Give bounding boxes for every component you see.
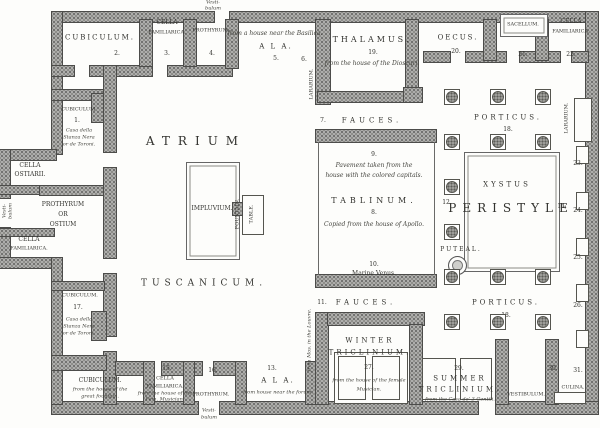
cella-familiarica-bottom-source-line2: Fem. Musician.: [146, 398, 185, 403]
column-icon: [444, 269, 460, 285]
sacellum: SACELLUM.: [507, 23, 539, 28]
cubiculum-17-source-line2: Stanza Nera: [63, 325, 95, 330]
table: TABLE.: [250, 205, 255, 224]
wall-atrium-west-2: [104, 168, 116, 258]
column-icon: [490, 314, 506, 330]
tablinum-side-east: [434, 142, 435, 275]
room-number-12: 12.: [442, 200, 452, 206]
tablinum-source-line2: house with the colored capitals.: [325, 173, 422, 179]
room-number-3: 3.: [164, 51, 170, 57]
room-number-22: 22.: [566, 52, 576, 58]
room-number-6: 6.: [301, 57, 307, 63]
room-number-21: 21.: [518, 52, 528, 58]
wall-cubiculum17-top: [52, 282, 104, 290]
room-number-8: 8.: [371, 210, 377, 216]
room-prothyrum-or-ostium-line1: PROTHYRUM: [42, 202, 84, 208]
room-number-24: 24.: [573, 208, 583, 214]
tablinum-source-line3: Copied from the house of Apollo.: [324, 222, 424, 228]
column-icon: [444, 89, 460, 105]
room-culina: CULINA.: [562, 386, 585, 391]
tablinum-side-west: [318, 142, 319, 275]
room-number-31: 31.: [573, 368, 583, 374]
room-winter-triclinium-line1: WINTER: [345, 338, 394, 345]
cubiculum-1-source-line2: Stanza Nera: [63, 136, 95, 141]
thalamus-source: from the house of the Dioscuri.: [325, 61, 420, 67]
room-atrium: ATRIUM: [146, 135, 246, 147]
cubiculum-bottom-left-source-line2: great fountain.: [81, 395, 119, 400]
room-cella-familiarica-top-line1: CELLA: [156, 20, 177, 26]
vestibulum-left-line2: bulum: [9, 203, 14, 219]
ala-bottom-source: from house near the forum.: [243, 391, 313, 396]
room-prothyrum-bottom: PROTHYRUM.: [193, 393, 230, 398]
wall-div-cubiculum2-cella3: [140, 20, 152, 66]
wall-annex-bottom: [0, 258, 58, 268]
room-number-29: 29.: [454, 366, 464, 372]
room-number-30: 30.: [548, 366, 558, 372]
room-thalamus: THALAMUS.: [333, 36, 412, 44]
winter-triclinium-source-line2: Musician.: [357, 388, 382, 393]
winter-triclinium-source-line1: from the house of the female: [332, 379, 405, 384]
room-cella-familiarica-right-line1: CELLA: [560, 19, 581, 25]
room-cubiculum-left-upper: CUBICULUM.: [61, 108, 97, 113]
wall-div-bottom-3: [236, 362, 246, 404]
room-cubiculum-top: CUBICULUM.: [65, 35, 135, 42]
room-tablinum: TABLINUM.: [331, 197, 417, 205]
wall-thalamus-east: [406, 20, 418, 98]
column-icon: [444, 134, 460, 150]
room-number-15: 15.: [162, 366, 172, 372]
column-icon: [444, 179, 460, 195]
wall-left-upper: [52, 12, 62, 154]
room-fauces-top: FAUCES.: [342, 118, 402, 125]
lararium-atrium: LARARIUM.: [310, 69, 315, 100]
wall-thalamus-south: [318, 92, 414, 102]
column-icon: [444, 314, 460, 330]
wall-right: [586, 12, 598, 414]
tablinum-source-line1: Pavement taken from the: [336, 163, 413, 169]
cubiculum-bottom-left-source-line1: from the house of the: [73, 388, 128, 393]
impluvium: IMPLUVIUM.: [191, 206, 232, 212]
cubiculum-1-source-line3: or de Toroni.: [63, 143, 96, 148]
cubiculum-1-source-line1: Casa della: [66, 129, 92, 134]
wall-niche: [576, 330, 589, 348]
room-number-14: 14.: [557, 204, 567, 210]
room-cella-familiarica-right-line2: FAMILIARICA.: [552, 30, 589, 35]
room-number-27: 27.: [364, 365, 374, 371]
column-icon: [490, 269, 506, 285]
wall-left-lower: [52, 258, 62, 404]
room-summer-triclinium-line2: TRICLINIUM.: [419, 387, 502, 394]
room-ala-bottom: A L A.: [261, 378, 294, 385]
wall-winter-west: [316, 313, 328, 404]
room-porticus-bottom: PORTICUS.: [472, 300, 540, 307]
room-cella-ostiarii-line1: CELLA: [19, 163, 40, 169]
room-number-13: 13.: [267, 366, 277, 372]
room-cella-familiarica-bottom-line1: CELLA: [156, 377, 174, 382]
wall-annex-div-2: [0, 229, 54, 236]
room-cella-familiarica-left-line1: CELLA: [18, 237, 39, 243]
room-number-1: 1.: [74, 118, 80, 124]
room-prothyrum-or-ostium-line2: OR: [58, 212, 67, 218]
wall-div-bottom-2: [184, 362, 194, 404]
room-number-2: 2.: [114, 51, 120, 57]
room-number-18-top: 18.: [503, 127, 513, 133]
column-icon: [490, 134, 506, 150]
room-cubiculum-left-lower: CUBICULUM.: [62, 294, 98, 299]
cubiculum-17-source-line1: Casa della: [66, 318, 92, 323]
room-number-4: 4.: [209, 51, 215, 57]
room-oecus: OECUS.: [438, 35, 479, 42]
room-number-20: 20.: [451, 49, 461, 55]
room-number-11: 11.: [317, 300, 327, 306]
lararium-niche: [574, 98, 592, 142]
wall-atrium-west-1: [104, 66, 116, 152]
vestibulum-bottom-line2: bulum: [201, 416, 217, 421]
wall-bottom-1: [52, 402, 198, 414]
room-prothyrum-top: PROTHYRUM.: [193, 29, 230, 34]
summer-triclinium-source: from the Casa de' 3 Gentili.: [425, 398, 495, 403]
wall-tablinum-north: [316, 130, 436, 142]
room-number-19: 19.: [368, 50, 378, 56]
room-number-17: 17.: [73, 305, 83, 311]
room-number-5: 5.: [273, 56, 279, 62]
vestibulum-bottom-line1: Vesti-: [202, 409, 216, 414]
room-number-16: 16.: [208, 368, 218, 374]
room-summer-triclinium-line1: SUMMER: [433, 376, 486, 383]
room-number-25: 25.: [573, 255, 583, 261]
puteal: PUTEAL.: [440, 247, 482, 253]
room-cella-familiarica-bottom-line2: FAMILIARICA.: [146, 385, 183, 390]
room-number-26: 26.: [573, 303, 583, 309]
room-winter-triclinium-line2: TRICLINIUM.: [329, 350, 412, 357]
fountain: FOUNTAIN.: [236, 199, 241, 229]
room-number-23: 23.: [573, 161, 583, 167]
wall-seg: [90, 66, 152, 76]
xystus: XYSTUS: [483, 182, 531, 189]
pompeian-house-floor-plan: Vesti-bulumCUBICULUM.2.CELLAFAMILIARICA.…: [0, 0, 600, 428]
room-number-9: 9.: [371, 152, 377, 158]
room-tuscanicum: TUSCANICUM.: [141, 280, 267, 289]
column-icon: [535, 269, 551, 285]
room-cella-familiarica-left-line2: FAMILIARICA.: [10, 247, 47, 252]
room-ala-top: A L A.: [259, 44, 292, 51]
vestibulum-top-line2: bulum: [205, 7, 221, 12]
room-porticus-top: PORTICUS.: [474, 115, 542, 122]
room-number-7: 7.: [320, 118, 326, 124]
room-cella-familiarica-top-line2: FAMILIARICA.: [148, 31, 185, 36]
column-icon: [535, 89, 551, 105]
column-icon: [490, 89, 506, 105]
wall-seg: [52, 66, 74, 76]
wall-cubiculum17-bottom: [52, 356, 106, 370]
wall-div-20-21: [484, 20, 496, 60]
column-icon: [535, 314, 551, 330]
room-number-10: 10.: [369, 262, 379, 268]
lararium-peristyle: LARARIUM.: [565, 103, 570, 134]
room-peristyle: PERISTYLE: [448, 202, 573, 214]
room-cella-ostiarii-line2: OSTIARII.: [15, 172, 46, 178]
cubiculum-17-source-line3: or de Toroni.: [63, 332, 96, 337]
column-icon: [535, 134, 551, 150]
wall-oecus-south-1: [424, 52, 450, 62]
room-vestibulum-rear: VESTIBULUM.: [507, 393, 545, 398]
hearth: [554, 392, 586, 404]
room-prothyrum-or-ostium-line3: OSTIUM: [50, 222, 77, 228]
wall-seg: [168, 66, 232, 76]
room-cubiculum-bottom-left: CUBICULUM.: [79, 378, 122, 384]
louvre-note: from Mos. in the Louvre.: [308, 309, 313, 372]
room-fauces-bottom: FAUCES.: [336, 300, 396, 307]
marine-venus: Marine Venus.: [352, 271, 396, 277]
wall-niche: [576, 284, 589, 302]
wall-pier: [404, 88, 422, 102]
wall-cubiculum1-bottom: [40, 186, 106, 195]
ala-top-source: from a house near the Basilica.: [228, 31, 323, 37]
wall-winter-north: [328, 313, 424, 325]
column-icon: [444, 224, 460, 240]
